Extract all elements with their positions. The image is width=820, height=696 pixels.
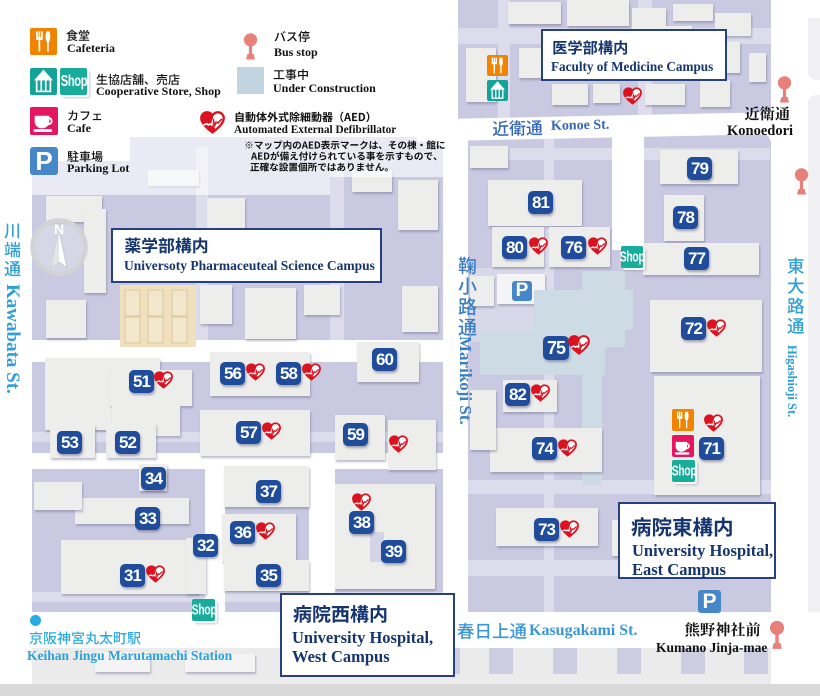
svg-text:N: N: [54, 221, 64, 237]
